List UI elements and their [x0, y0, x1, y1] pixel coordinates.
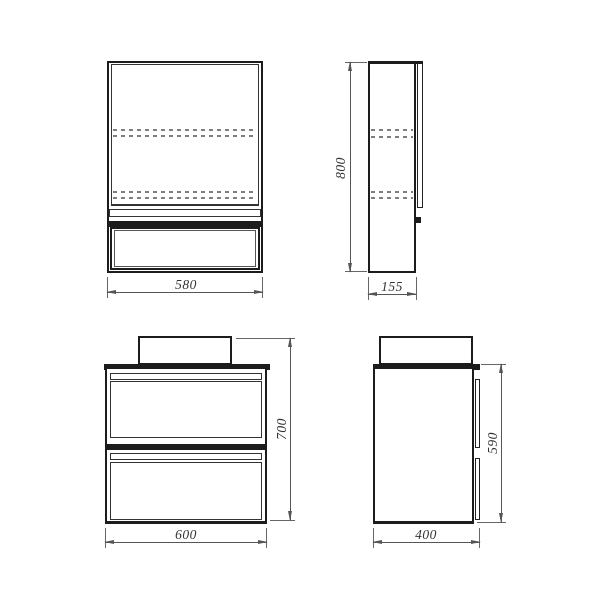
dim-arrow-left — [372, 540, 382, 544]
dim-arrow-right — [254, 290, 264, 294]
extension-line — [479, 528, 480, 548]
dim-arrow-down — [348, 263, 352, 273]
dim-arrow-up — [499, 363, 503, 373]
extension-line — [262, 277, 263, 298]
extension-line — [368, 277, 369, 300]
technical-drawing-canvas: 580 800 155 — [0, 0, 600, 600]
dimension-line-vanity-body-height — [501, 364, 502, 522]
dim-arrow-right — [471, 540, 481, 544]
extension-line — [105, 528, 106, 548]
dimension-label-mirror-height: 800 — [333, 157, 349, 179]
open-shelf-inner — [114, 230, 256, 267]
extension-line — [236, 338, 295, 339]
mirror-side-body — [368, 61, 416, 273]
shelf-dashed-line — [113, 129, 257, 131]
dim-arrow-down — [288, 511, 292, 521]
mirror-top-cap — [368, 61, 423, 64]
dimension-label-vanity-width: 600 — [175, 527, 197, 543]
extension-line — [266, 528, 267, 548]
basin-side — [379, 336, 473, 365]
shelf-dashed-line — [371, 197, 413, 199]
dimension-label-vanity-body-height: 590 — [485, 432, 501, 454]
shelf-dashed-line — [371, 129, 413, 131]
shelf-dashed-line — [371, 191, 413, 193]
shelf-dashed-line — [113, 135, 257, 137]
dimension-label-mirror-depth: 155 — [381, 279, 403, 295]
dim-arrow-left — [104, 540, 114, 544]
mirror-side-door-strip — [417, 62, 423, 208]
drawer-divider-band — [106, 444, 266, 450]
drawer-top-rail — [110, 373, 262, 380]
shelf-dashed-line — [113, 191, 257, 193]
vanity-body-side — [373, 369, 474, 524]
extension-line — [373, 528, 374, 548]
dim-arrow-left — [367, 292, 377, 296]
door-handle — [414, 217, 421, 223]
extension-line — [416, 277, 417, 300]
dim-arrow-down — [499, 513, 503, 523]
dim-arrow-up — [348, 61, 352, 71]
shelf-dashed-line — [113, 197, 257, 199]
dimension-line-vanity-height — [290, 338, 291, 520]
drawer-front-lower — [110, 462, 262, 520]
drawer-rail-lower — [110, 453, 262, 460]
extension-line — [107, 277, 108, 298]
dimension-label-mirror-width: 580 — [175, 277, 197, 293]
dimension-label-vanity-height: 700 — [274, 418, 290, 440]
drawer-side-strip-upper — [475, 379, 480, 448]
drawer-front-upper — [110, 381, 262, 438]
basin-front — [138, 336, 232, 365]
dim-arrow-right — [407, 292, 417, 296]
dim-arrow-right — [258, 540, 268, 544]
dimension-label-vanity-depth: 400 — [415, 527, 437, 543]
drawer-side-strip-lower — [475, 458, 480, 520]
cabinet-rail — [109, 209, 261, 217]
shelf-dashed-line — [371, 136, 413, 138]
dim-arrow-up — [288, 337, 292, 347]
dimension-line-mirror-height — [350, 62, 351, 272]
dim-arrow-left — [106, 290, 116, 294]
